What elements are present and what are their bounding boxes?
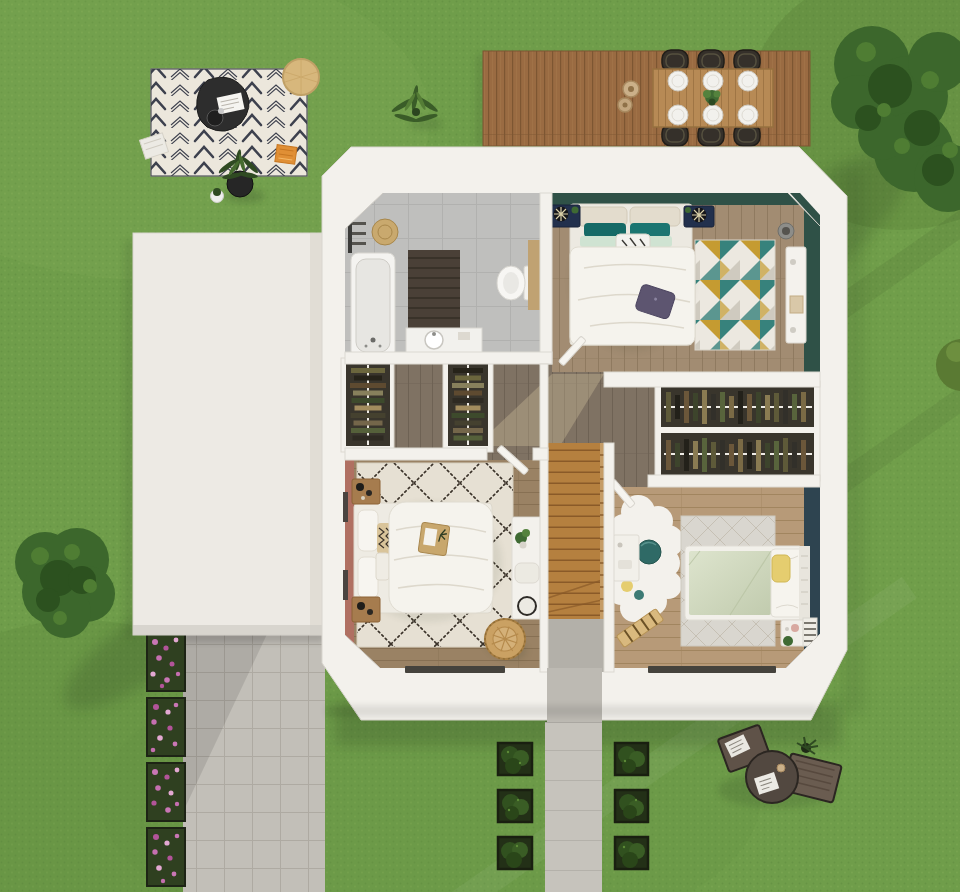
wall — [540, 193, 552, 364]
pillow — [358, 510, 378, 551]
floor-plan-render — [0, 0, 960, 892]
master-bedroom — [550, 193, 820, 372]
white-desk — [613, 535, 639, 581]
nightstand — [781, 620, 805, 646]
boxwood-planter — [498, 743, 532, 775]
bed-tray — [418, 522, 450, 556]
wood-shelf — [528, 240, 540, 310]
plant — [783, 636, 793, 646]
accent-wall-teal-top — [552, 193, 820, 205]
nightstand-right — [684, 206, 714, 227]
window — [648, 666, 776, 673]
rattan-wall-decor — [372, 219, 398, 245]
teal-pouf — [634, 590, 644, 600]
stair-landing — [548, 617, 607, 672]
bathtub — [351, 253, 395, 358]
flower-planter — [147, 633, 185, 691]
flower-planter — [147, 698, 185, 756]
bathroom — [345, 193, 540, 358]
round-mirror — [518, 597, 536, 615]
wall — [345, 448, 487, 460]
boxwood-planter — [615, 837, 648, 869]
wood-stairs — [548, 443, 602, 619]
sage-mattress — [689, 551, 771, 615]
orange-towel — [275, 145, 297, 165]
dark-coffee-table — [197, 77, 249, 131]
duvet — [570, 247, 695, 345]
window — [343, 570, 348, 600]
bedroom-3 — [604, 479, 820, 668]
window — [343, 492, 348, 522]
wood-nightstand — [352, 479, 380, 504]
garage-flat-roof — [133, 233, 325, 635]
boxwood-planter — [498, 790, 532, 822]
bath-mat — [408, 250, 460, 328]
white-desk — [512, 517, 544, 619]
driveway — [183, 632, 325, 892]
garden-walkway — [545, 710, 602, 892]
wall — [648, 475, 820, 487]
wall — [345, 352, 552, 364]
wood-nightstand — [352, 597, 380, 622]
round-side-table — [746, 751, 798, 803]
wardrobe-left-1 — [341, 358, 394, 452]
bedroom-2 — [345, 445, 544, 668]
nightstand-left — [550, 205, 580, 227]
boxwood-planter — [498, 837, 532, 869]
staircase — [548, 443, 607, 672]
geometric-rug — [695, 240, 775, 350]
flower-planter — [147, 763, 185, 821]
white-dresser — [786, 247, 806, 343]
wall — [604, 443, 614, 672]
yellow-pillow — [772, 555, 790, 582]
headboard — [799, 546, 810, 620]
pouf — [283, 59, 319, 95]
house — [322, 147, 847, 722]
wardrobe-left-2 — [443, 358, 493, 452]
vanity-sink — [406, 328, 482, 354]
window — [405, 666, 505, 673]
wall — [604, 372, 820, 387]
throw — [376, 553, 389, 580]
pillow — [358, 557, 378, 598]
flower-planter — [147, 828, 185, 886]
boxwood-planter — [615, 790, 648, 822]
master-bed — [570, 204, 695, 352]
boxwood-planter — [615, 743, 648, 775]
wardrobes-right — [655, 381, 820, 481]
yellow-pouf — [621, 580, 633, 592]
wall — [533, 448, 548, 460]
teal-floor-cushion — [637, 540, 661, 564]
wall — [540, 364, 548, 672]
